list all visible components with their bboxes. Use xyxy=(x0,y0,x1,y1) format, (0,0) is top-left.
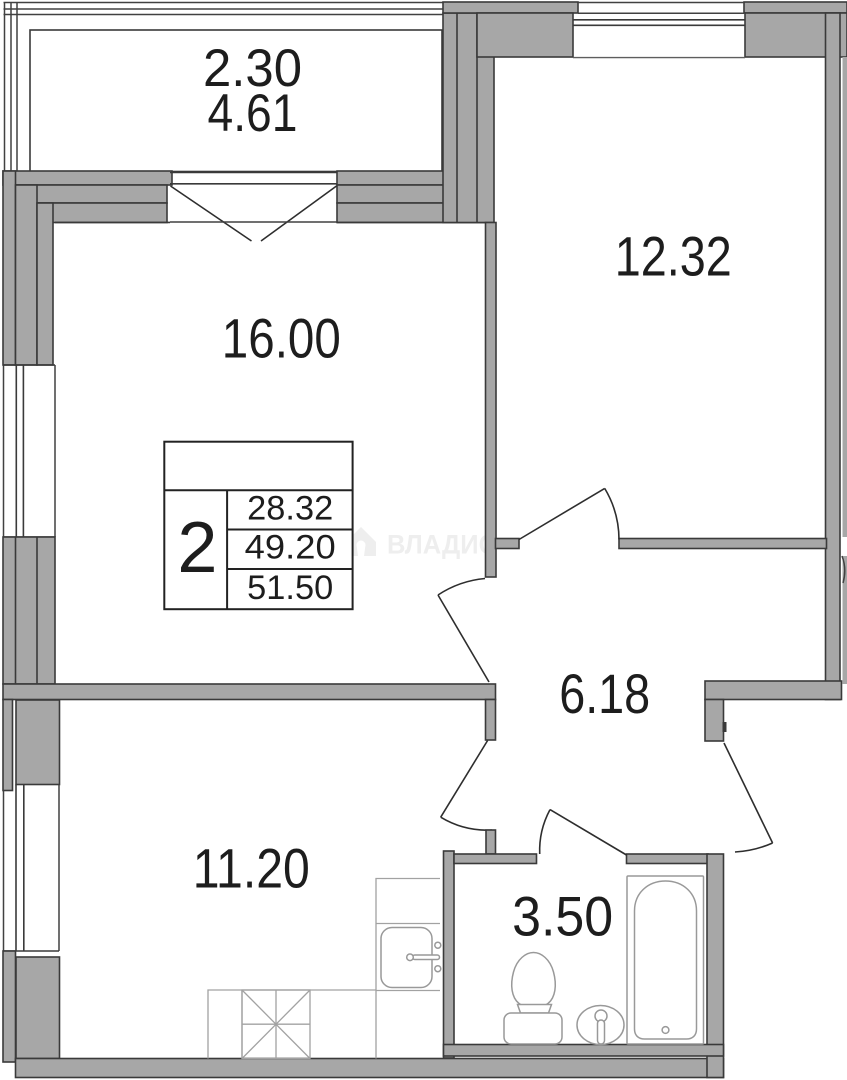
svg-text:12.32: 12.32 xyxy=(615,225,732,288)
svg-text:51.50: 51.50 xyxy=(247,569,333,607)
svg-text:2: 2 xyxy=(177,508,217,588)
svg-text:4.61: 4.61 xyxy=(208,84,298,143)
svg-text:49.20: 49.20 xyxy=(245,529,336,567)
svg-text:16.00: 16.00 xyxy=(222,307,341,370)
svg-text:11.20: 11.20 xyxy=(193,837,310,900)
svg-text:28.32: 28.32 xyxy=(247,490,333,528)
svg-text:3.50: 3.50 xyxy=(512,885,613,948)
svg-text:ВЛАДИС: ВЛАДИС xyxy=(387,530,497,560)
svg-text:6.18: 6.18 xyxy=(559,662,650,725)
